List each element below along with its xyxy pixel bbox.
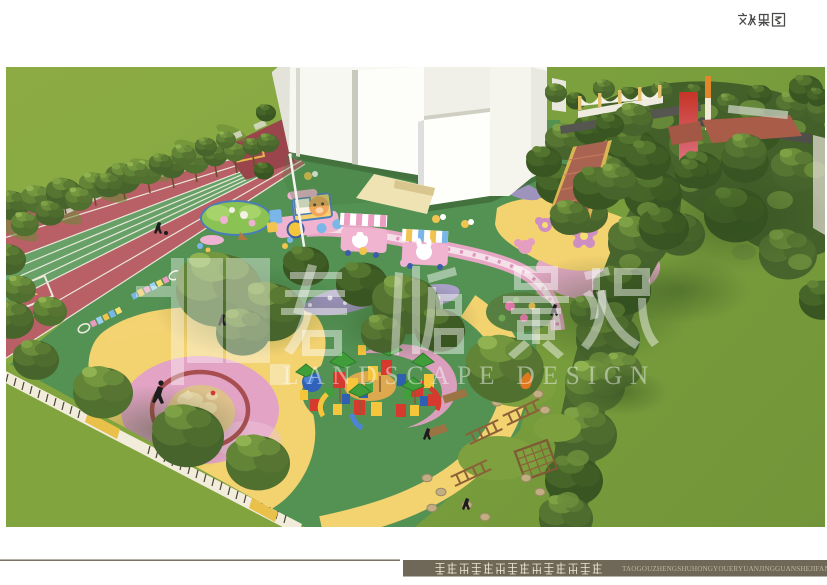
- svg-text:LANDSCAPE DESIGN: LANDSCAPE DESIGN: [283, 361, 656, 390]
- svg-text:TAOGOUZHENGSHUHONGYOUERYUANJIN: TAOGOUZHENGSHUHONGYOUERYUANJINGGUANSHEJI…: [622, 565, 827, 573]
